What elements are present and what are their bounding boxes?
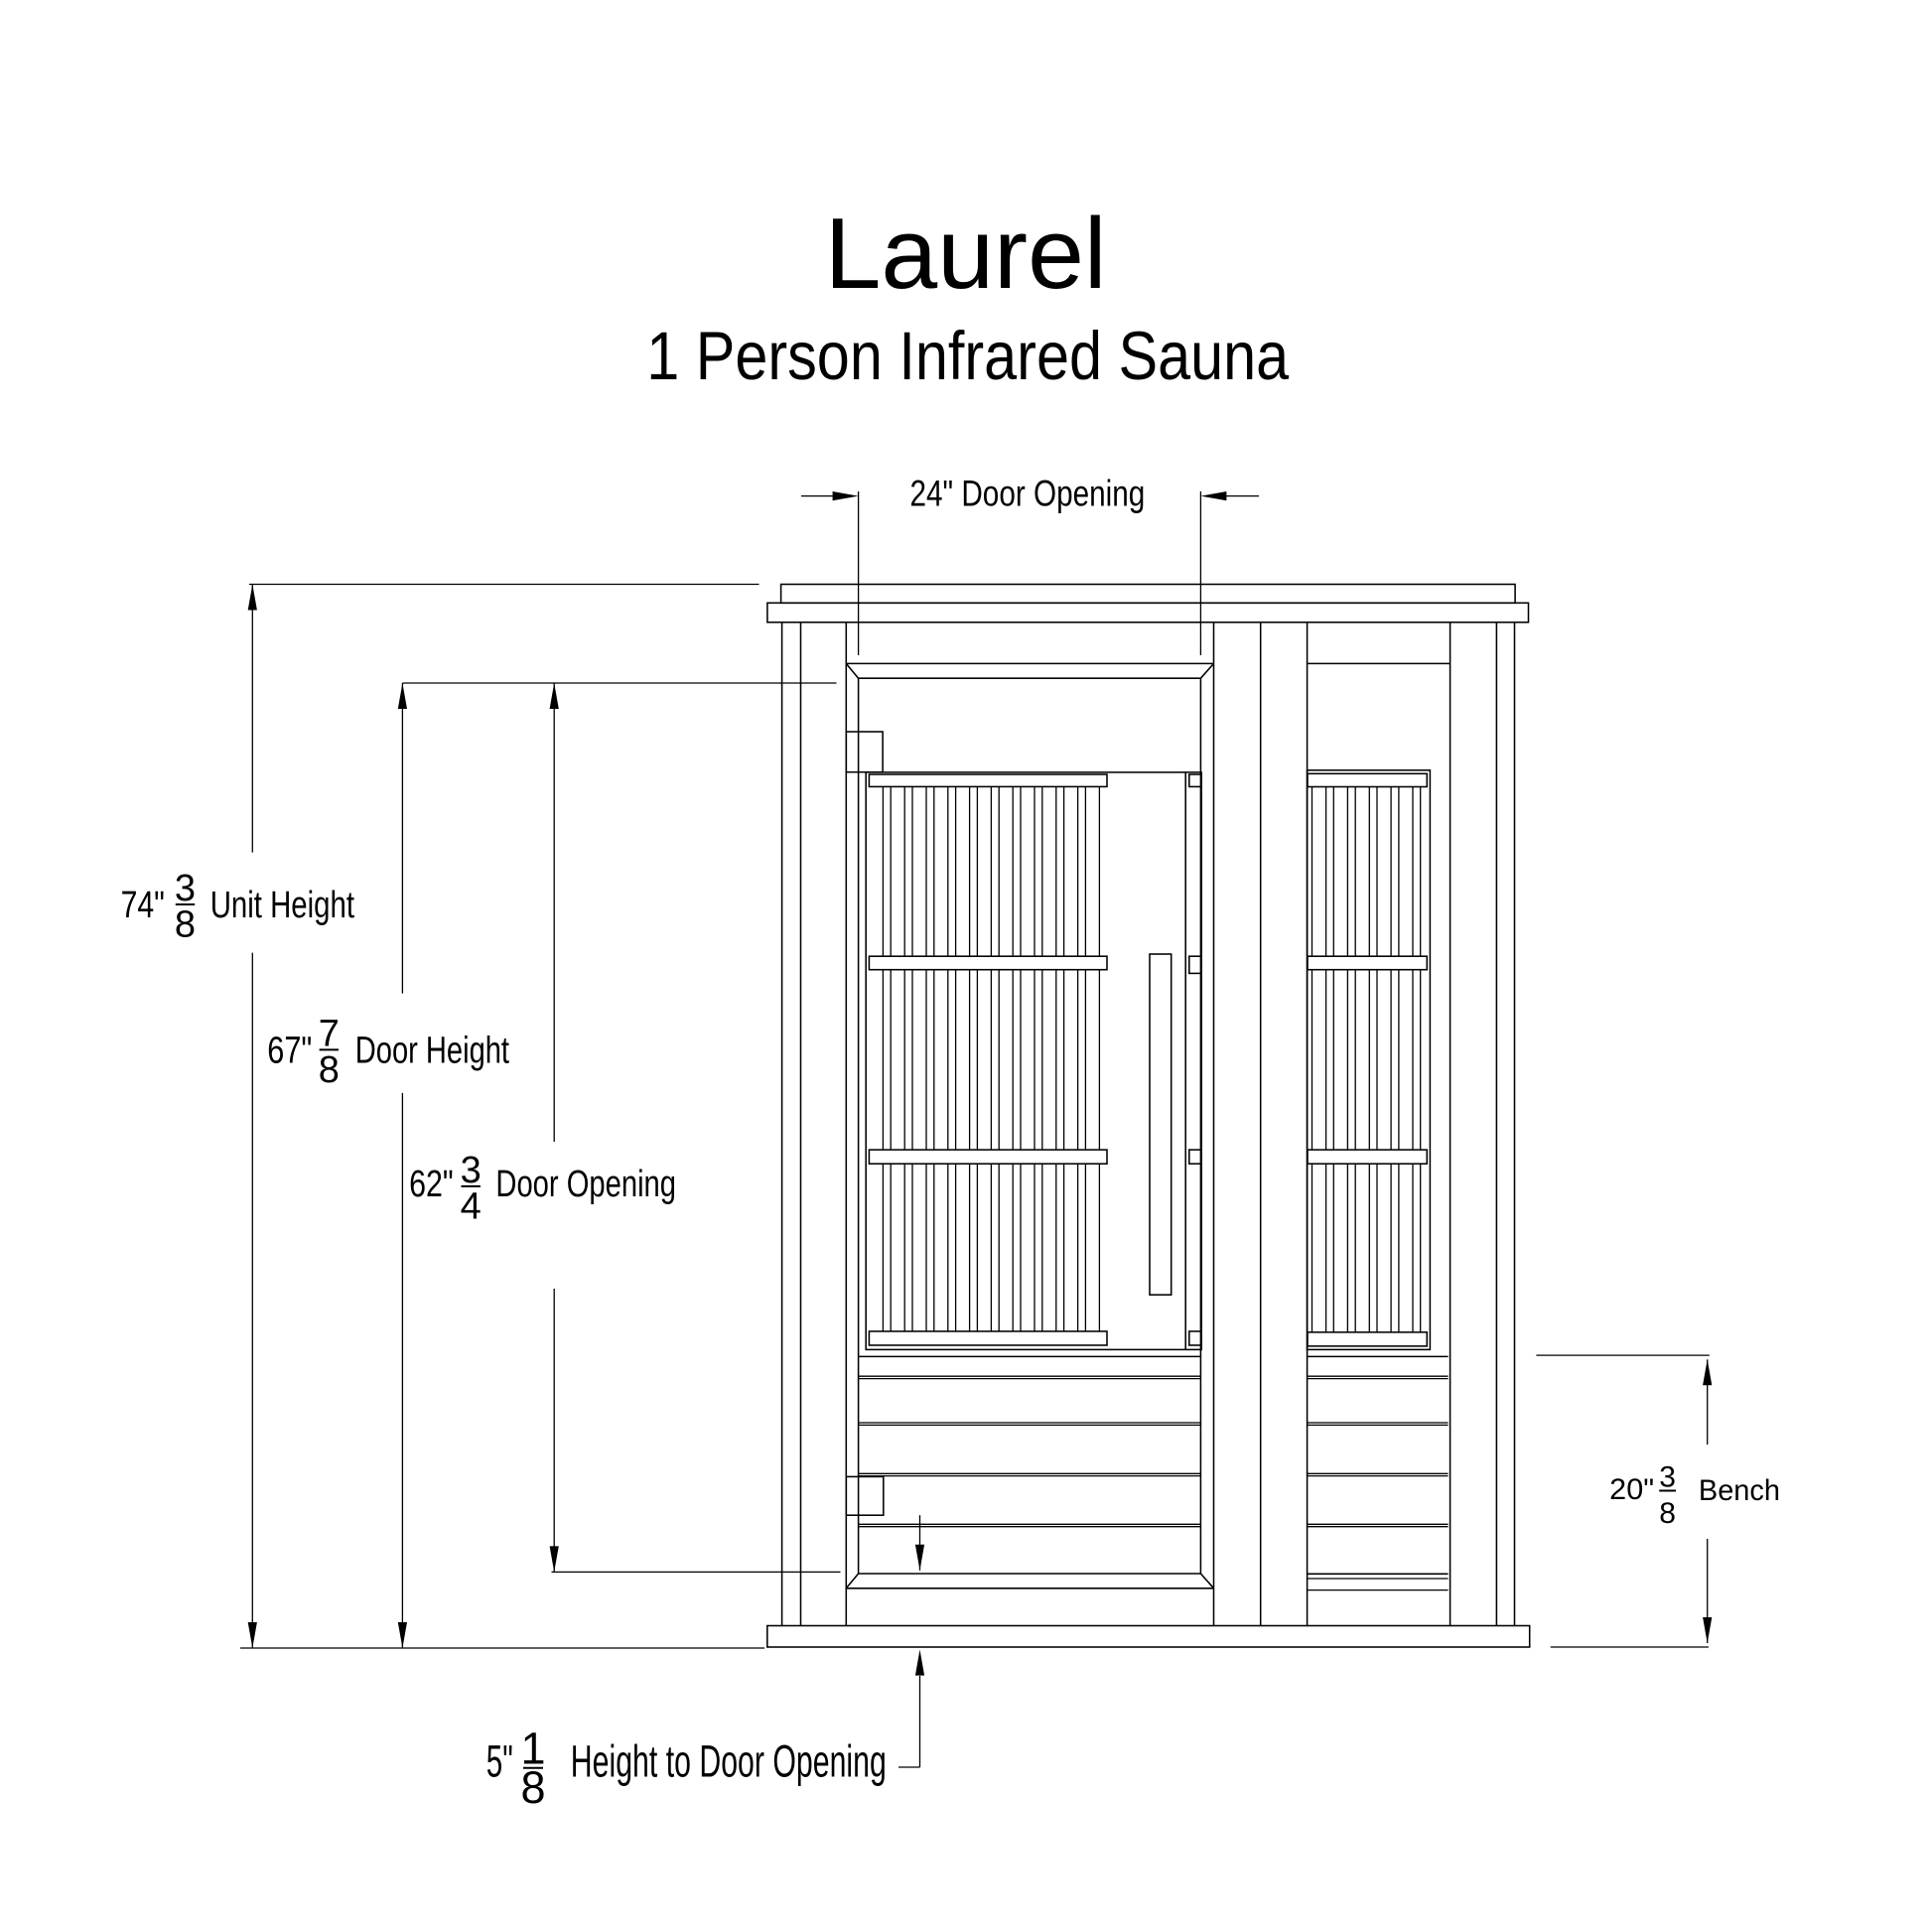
svg-text:1 Person Infrared Sauna: 1 Person Infrared Sauna — [646, 318, 1290, 394]
svg-text:Height to Door Opening: Height to Door Opening — [571, 1735, 887, 1786]
svg-text:5": 5" — [486, 1735, 513, 1786]
svg-text:Door Opening: Door Opening — [495, 1164, 676, 1205]
svg-text:4: 4 — [461, 1186, 482, 1228]
svg-text:8: 8 — [1659, 1497, 1676, 1530]
svg-text:67": 67" — [267, 1030, 312, 1071]
svg-text:Laurel: Laurel — [825, 199, 1107, 310]
svg-text:8: 8 — [175, 904, 196, 946]
svg-text:62": 62" — [409, 1164, 454, 1205]
svg-text:8: 8 — [520, 1762, 545, 1813]
svg-text:8: 8 — [319, 1049, 340, 1091]
svg-text:Bench: Bench — [1699, 1474, 1780, 1507]
svg-text:24" Door Opening: 24" Door Opening — [910, 474, 1146, 514]
svg-text:Door Height: Door Height — [355, 1030, 510, 1071]
svg-text:20": 20" — [1609, 1473, 1654, 1506]
svg-text:74": 74" — [121, 885, 165, 926]
svg-text:Unit Height: Unit Height — [210, 885, 355, 926]
svg-text:3: 3 — [1659, 1461, 1676, 1494]
